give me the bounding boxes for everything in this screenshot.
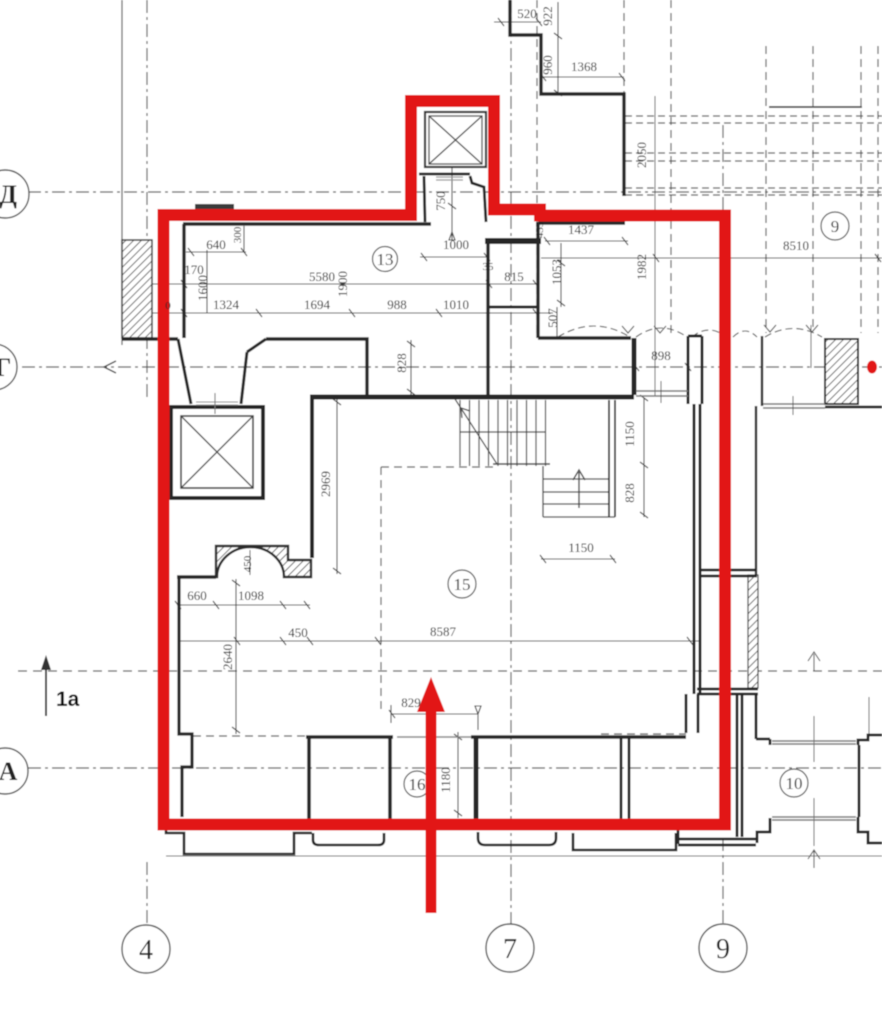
svg-text:2050: 2050 <box>634 142 649 168</box>
svg-text:898: 898 <box>651 348 671 363</box>
svg-text:435: 435 <box>534 221 546 238</box>
svg-text:300: 300 <box>232 226 244 243</box>
svg-text:Г: Г <box>0 353 11 382</box>
svg-text:7: 7 <box>503 934 517 965</box>
svg-text:5580: 5580 <box>309 269 335 284</box>
svg-text:8510: 8510 <box>783 238 809 253</box>
svg-text:2969: 2969 <box>318 471 333 497</box>
svg-text:815: 815 <box>504 269 524 284</box>
svg-text:0: 0 <box>165 300 171 312</box>
svg-text:1053: 1053 <box>549 259 564 285</box>
svg-text:988: 988 <box>387 297 407 312</box>
svg-text:450: 450 <box>242 555 254 572</box>
svg-text:35: 35 <box>483 261 495 273</box>
svg-text:16: 16 <box>409 775 426 794</box>
svg-text:1010: 1010 <box>443 297 469 312</box>
svg-text:Д: Д <box>0 180 17 209</box>
svg-text:660: 660 <box>187 588 207 603</box>
svg-text:750: 750 <box>433 191 448 211</box>
svg-text:829: 829 <box>401 695 421 710</box>
svg-text:10: 10 <box>786 774 803 793</box>
svg-text:8587: 8587 <box>430 624 457 639</box>
svg-text:640: 640 <box>206 237 226 252</box>
svg-text:1150: 1150 <box>622 421 637 447</box>
svg-text:828: 828 <box>622 483 637 503</box>
svg-text:520: 520 <box>517 6 537 21</box>
svg-text:170: 170 <box>184 262 204 277</box>
svg-text:А: А <box>0 757 18 786</box>
svg-text:1000: 1000 <box>443 237 469 252</box>
svg-text:1324: 1324 <box>213 297 240 312</box>
svg-text:828: 828 <box>394 353 409 373</box>
svg-text:13: 13 <box>377 250 394 269</box>
svg-text:9: 9 <box>716 934 730 965</box>
svg-text:1600: 1600 <box>195 275 210 301</box>
svg-text:4: 4 <box>139 935 153 966</box>
svg-text:15: 15 <box>454 575 471 594</box>
svg-text:1982: 1982 <box>634 254 649 280</box>
svg-text:1437: 1437 <box>568 222 595 237</box>
svg-text:1900: 1900 <box>335 271 350 297</box>
svg-text:507: 507 <box>545 308 560 328</box>
svg-text:9: 9 <box>831 217 840 236</box>
svg-text:1098: 1098 <box>238 588 264 603</box>
svg-text:450: 450 <box>288 625 308 640</box>
svg-text:1180: 1180 <box>438 767 453 793</box>
svg-text:1694: 1694 <box>304 297 331 312</box>
svg-text:2640: 2640 <box>220 644 235 670</box>
svg-text:1a: 1a <box>56 688 80 711</box>
svg-text:1150: 1150 <box>568 540 594 555</box>
svg-text:960: 960 <box>540 55 555 75</box>
svg-text:922: 922 <box>540 6 555 26</box>
svg-text:1368: 1368 <box>571 59 597 74</box>
